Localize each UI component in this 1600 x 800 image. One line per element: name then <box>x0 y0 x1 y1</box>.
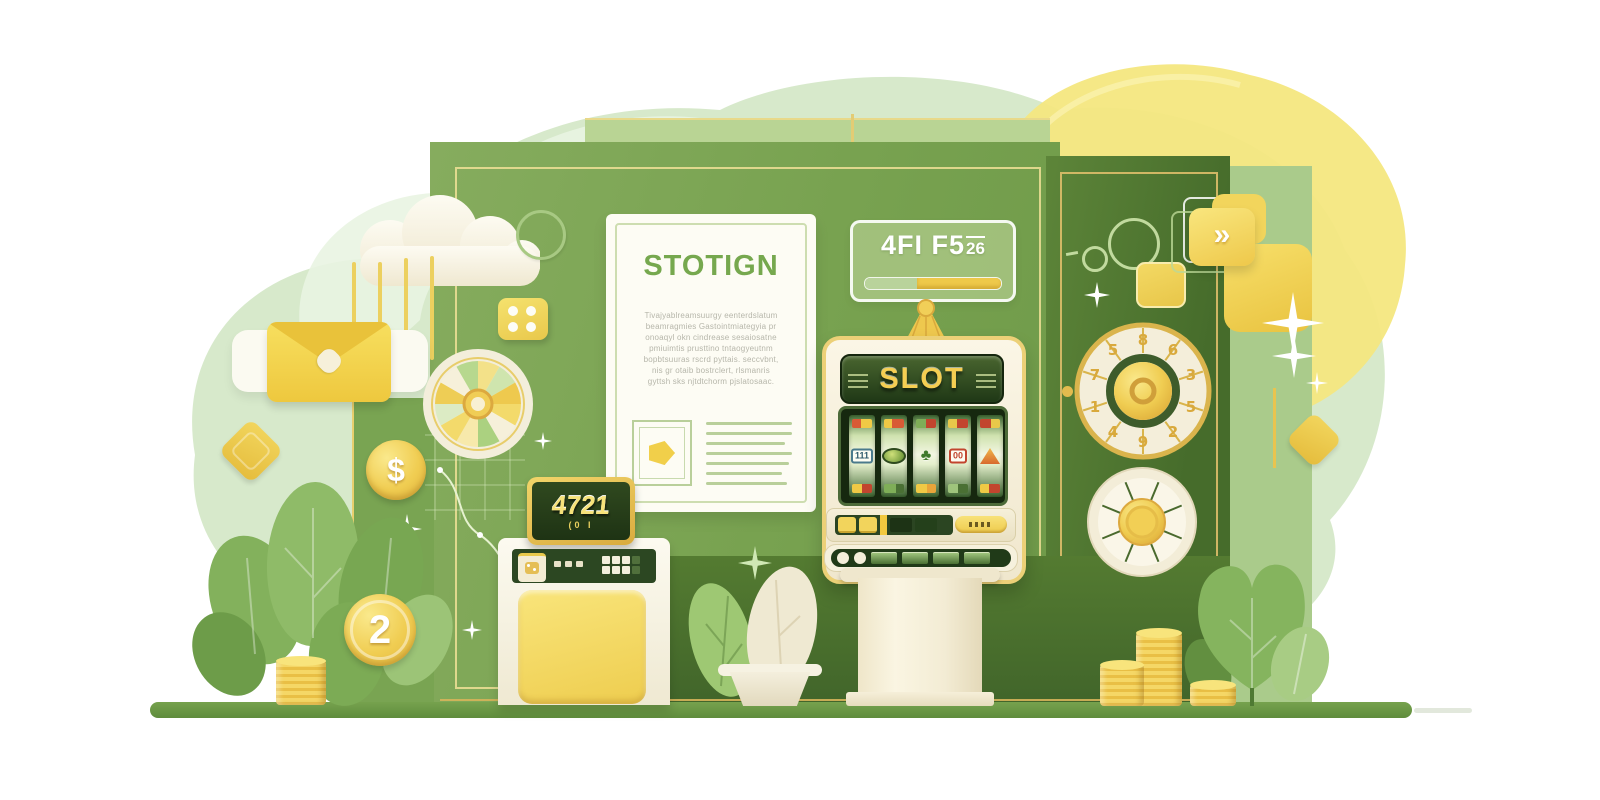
vertical-gold-line <box>1273 388 1276 468</box>
kiosk-display-sub: (0 I <box>568 520 593 530</box>
coin-stack-short <box>1190 684 1236 706</box>
document-footer <box>632 420 792 486</box>
slot-control-panel <box>826 508 1016 542</box>
kiosk-screen: 4721 (0 I <box>532 482 630 540</box>
arrow-card: » <box>1189 208 1255 266</box>
slot-reel-4: 00 <box>945 415 971 497</box>
sign-text-small: 26 <box>966 236 985 259</box>
svg-text:5: 5 <box>1108 341 1118 359</box>
kiosk-key-grid <box>602 556 646 574</box>
text-line-placeholders <box>706 420 792 486</box>
green-button <box>964 552 990 564</box>
coin-two: 2 <box>344 594 416 666</box>
fortune-wheel <box>420 348 536 460</box>
slot-reel-window: 111 ♣ 00 <box>838 406 1008 506</box>
orange-peak-icon <box>980 448 1000 464</box>
dice-icon <box>498 298 548 340</box>
kiosk-front-panel <box>518 590 646 704</box>
sign-text-main: 4FI F5 <box>881 230 965 260</box>
badge-00-icon: 00 <box>949 449 967 464</box>
slot-reel-2 <box>881 415 907 497</box>
double-chevron-icon: » <box>1214 220 1231 250</box>
slot-reel-3: ♣ <box>913 415 939 497</box>
slot-finial <box>898 298 954 340</box>
slot-banner: SLOT <box>840 354 1004 404</box>
svg-text:1: 1 <box>1090 398 1100 416</box>
cloud <box>330 188 540 288</box>
illustration-stage: $ 2 STOTIGN Tivajyablreamsuurgy eenterds… <box>0 0 1600 800</box>
green-button <box>902 552 928 564</box>
sign-progress-bar <box>864 277 1002 290</box>
pentagon-icon <box>649 441 675 465</box>
green-button <box>933 552 959 564</box>
slot-banner-text: SLOT <box>842 356 1002 402</box>
green-button <box>871 552 897 564</box>
badge-111-icon: 111 <box>851 449 873 464</box>
ground-shadow-tail <box>1414 708 1472 713</box>
combination-dial: 8 6 3 5 2 9 4 1 7 5 <box>1073 321 1213 461</box>
progress-left-segment <box>865 278 917 289</box>
envelope-icon <box>267 322 391 402</box>
slot-reel-5 <box>977 415 1003 497</box>
slot-pedestal <box>858 578 982 694</box>
dice-chip-icon <box>518 553 546 582</box>
document-paragraph: Tivajyablreamsuurgy eenterdslatum beamra… <box>630 310 792 387</box>
outline-circle-small <box>1082 246 1108 272</box>
round-button <box>854 552 866 564</box>
slot-pedestal-base <box>846 692 994 706</box>
kiosk-display: 4721 (0 I <box>527 477 635 545</box>
plant-leaves-left <box>185 468 475 708</box>
rain-line <box>430 256 434 360</box>
yellow-button <box>838 517 856 533</box>
screen-segment <box>915 518 937 532</box>
round-button <box>837 552 849 564</box>
kiosk-marks <box>554 561 583 567</box>
embossed-circle <box>516 210 566 260</box>
sign-text: 4FI F526 <box>853 230 1013 261</box>
clover-icon: ♣ <box>921 447 932 465</box>
kiosk-display-main: 4721 <box>551 492 612 518</box>
svg-text:7: 7 <box>1090 366 1100 384</box>
screen-segment <box>890 518 912 532</box>
glass-sign: 4FI F526 <box>850 220 1016 302</box>
svg-text:5: 5 <box>1186 398 1196 416</box>
document-title: STOTIGN <box>606 250 816 283</box>
progress-right-segment <box>917 278 1001 289</box>
thumbnail-box <box>632 420 692 486</box>
control-track <box>835 515 953 535</box>
svg-text:3: 3 <box>1186 366 1196 384</box>
svg-text:4: 4 <box>1108 423 1118 441</box>
svg-text:2: 2 <box>1168 423 1178 441</box>
coin-stack-medium <box>1100 664 1144 706</box>
yellow-slider-bar <box>880 515 887 535</box>
pill-button <box>955 516 1007 533</box>
document-card: STOTIGN Tivajyablreamsuurgy eenterdslatu… <box>606 214 816 512</box>
yellow-button <box>859 517 877 533</box>
slot-reel-1: 111 <box>849 415 875 497</box>
svg-text:6: 6 <box>1168 341 1178 359</box>
kiosk-control-strip <box>512 549 656 583</box>
coin-two-label: 2 <box>369 608 391 653</box>
svg-text:9: 9 <box>1138 433 1148 451</box>
coin-stack <box>276 660 326 705</box>
svg-text:8: 8 <box>1138 331 1148 349</box>
dial-side-knob <box>1062 386 1073 397</box>
green-oval-icon <box>882 448 906 464</box>
